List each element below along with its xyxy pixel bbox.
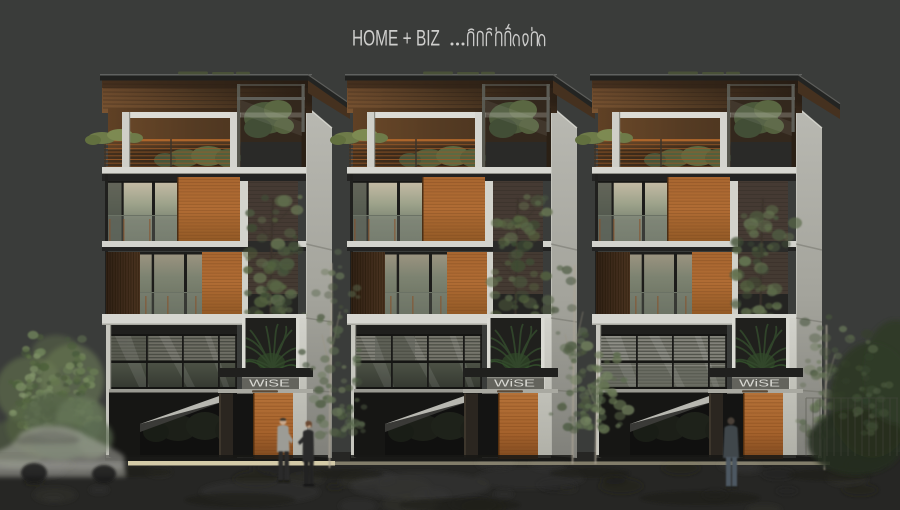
- svg-text:HOME + BIZ: HOME + BIZ: [352, 26, 440, 51]
- svg-text:WiSE: WiSE: [739, 378, 780, 390]
- svg-text:WiSE: WiSE: [494, 378, 535, 390]
- svg-text:WiSE: WiSE: [249, 378, 290, 390]
